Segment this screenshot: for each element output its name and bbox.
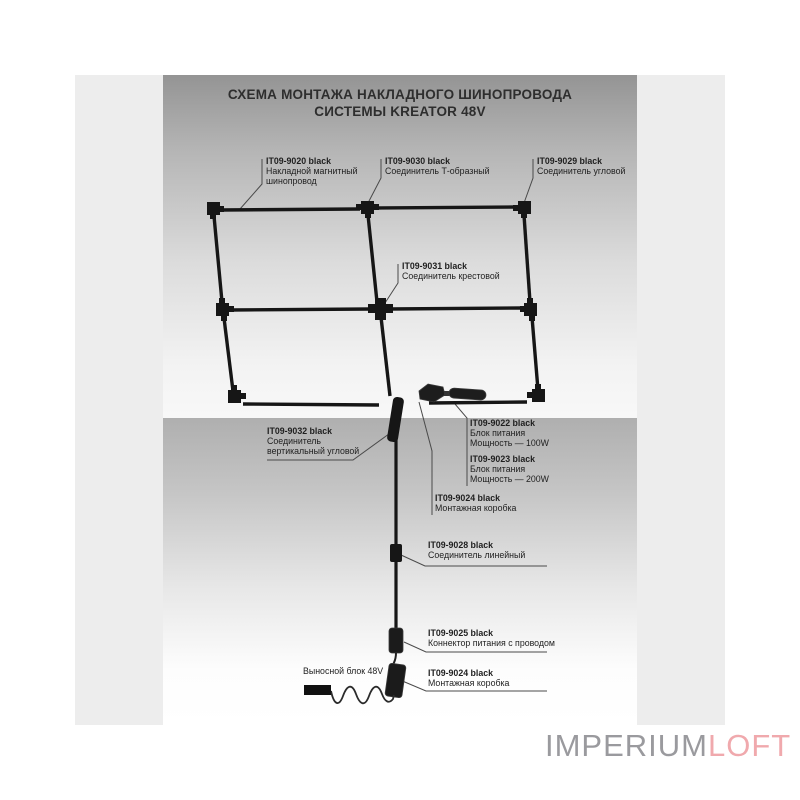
remote-block-icon [304, 685, 331, 695]
t-connector-icon [216, 298, 234, 321]
corner-connector-icon [513, 201, 531, 218]
watermark-imperium: IMPERIUM [545, 728, 708, 763]
label-it09-9029: IT09-9029 black Соединитель угловой [537, 157, 625, 177]
part-desc: Соединитель крестовой [402, 272, 500, 282]
label-it09-9030: IT09-9030 black Соединитель Т-образный [385, 157, 490, 177]
label-it09-9020: IT09-9020 black Накладной магнитный шино… [266, 157, 358, 186]
mounting-box-icon [419, 384, 445, 402]
watermark-loft: LOFT [708, 728, 791, 763]
t-connector-icon [356, 201, 379, 218]
label-it09-9023: IT09-9023 black Блок питания Мощность — … [470, 455, 549, 484]
corner-connector-icon [207, 202, 224, 219]
diagram-stage: СХЕМА МОНТАЖА НАКЛАДНОГО ШИНОПРОВОДА СИС… [163, 75, 637, 725]
track-segment [381, 317, 390, 396]
power-supply-group [419, 384, 486, 402]
leader-9024a [419, 402, 432, 515]
leader-9029 [524, 159, 533, 203]
track-segment [214, 216, 222, 302]
product-photo: СХЕМА МОНТАЖА НАКЛАДНОГО ШИНОПРОВОДА СИС… [75, 75, 725, 725]
part-desc: Мощность — 100W [470, 439, 549, 449]
power-supply-icon [449, 388, 487, 401]
label-it09-9022: IT09-9022 black Блок питания Мощность — … [470, 419, 549, 448]
part-desc: Выносной блок 48V [303, 667, 383, 677]
part-desc: Монтажная коробка [428, 679, 509, 689]
power-connector-icon [389, 628, 403, 653]
part-desc: шинопровод [266, 177, 358, 187]
track-segment [524, 215, 530, 302]
label-it09-9031: IT09-9031 black Соединитель крестовой [402, 262, 500, 282]
track-segment [220, 209, 360, 210]
track-segment [429, 402, 527, 403]
connector-icons [207, 201, 545, 403]
track-segment [243, 404, 379, 405]
track-segment [230, 309, 372, 310]
track-segment [375, 207, 516, 208]
corner-connector-icon [527, 384, 545, 402]
label-it09-9032: IT09-9032 black Соединитель вертикальный… [267, 427, 359, 456]
brand-watermark: IMPERIUMLOFT [545, 728, 791, 764]
mounting-box-icon [385, 663, 406, 698]
cross-connector-icon [368, 298, 393, 320]
linear-connector-icon [390, 544, 402, 562]
leader-9020 [240, 159, 262, 209]
page-title: СХЕМА МОНТАЖА НАКЛАДНОГО ШИНОПРОВОДА СИС… [163, 86, 637, 120]
power-cable [331, 687, 394, 704]
part-desc: Мощность — 200W [470, 475, 549, 485]
label-remote-block: Выносной блок 48V [303, 667, 383, 677]
label-it09-9025: IT09-9025 black Коннектор питания с пров… [428, 629, 555, 649]
track-segment [368, 215, 377, 302]
vertical-corner-connector-icon [387, 396, 405, 442]
part-desc: Коннектор питания с проводом [428, 639, 555, 649]
track-segment [389, 308, 523, 309]
part-desc: Соединитель линейный [428, 551, 525, 561]
part-desc: Соединитель угловой [537, 167, 625, 177]
t-connector-icon [520, 298, 537, 321]
label-it09-9028: IT09-9028 black Соединитель линейный [428, 541, 525, 561]
title-line-2: СИСТЕМЫ KREATOR 48V [163, 103, 637, 120]
track-segment [532, 317, 538, 390]
leader-9022 [455, 404, 467, 486]
part-desc: Монтажная коробка [435, 504, 516, 514]
leader-9031 [385, 264, 398, 303]
part-desc: вертикальный угловой [267, 447, 359, 457]
part-desc: Соединитель Т-образный [385, 167, 490, 177]
label-it09-9024-bottom: IT09-9024 black Монтажная коробка [428, 669, 509, 689]
label-it09-9024-top: IT09-9024 black Монтажная коробка [435, 494, 516, 514]
title-line-1: СХЕМА МОНТАЖА НАКЛАДНОГО ШИНОПРОВОДА [163, 86, 637, 103]
corner-connector-icon [228, 385, 246, 403]
leader-9030 [368, 159, 381, 203]
track-segment [224, 318, 233, 391]
